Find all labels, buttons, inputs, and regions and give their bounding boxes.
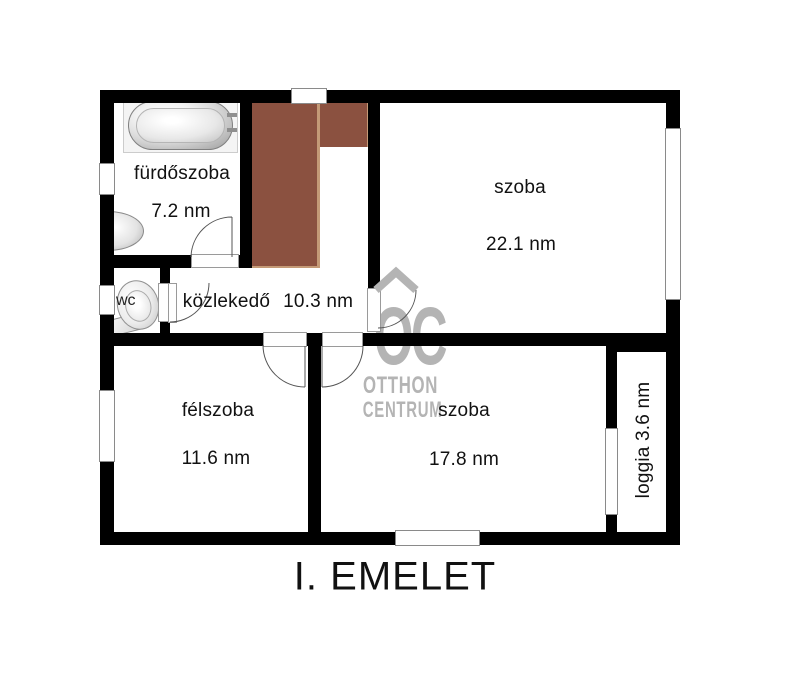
room-label-room-large: szoba — [494, 177, 546, 199]
room-area-bathroom: 7.2 nm — [151, 201, 210, 223]
watermark-line1: OTTHON — [363, 374, 433, 398]
watermark-line2: CENTRUM — [363, 399, 434, 421]
wall-left — [100, 90, 114, 545]
entrance-opening — [291, 88, 327, 104]
wall-halfroom-room-separator — [308, 333, 321, 532]
window-room-medium — [395, 530, 480, 546]
door-swing-room-medium-icon — [322, 346, 363, 387]
faucet-icon — [227, 128, 237, 132]
room-label-room-medium: szoba — [438, 400, 490, 422]
window-halfroom — [99, 390, 115, 462]
room-area-halfroom: 11.6 nm — [182, 448, 251, 470]
room-label-hallway: közlekedő10.3 nm — [183, 291, 353, 313]
stairwell-area — [252, 93, 320, 268]
floor-title: I. EMELET — [294, 555, 496, 600]
door-halfroom — [263, 332, 307, 347]
door-room-medium — [322, 332, 363, 347]
wall-loggia-top — [606, 340, 680, 352]
window-bathroom — [99, 163, 115, 195]
room-label-wc: wc — [116, 292, 136, 310]
floor-plan: OC OTTHON CENTRUM — [0, 0, 800, 691]
wall-bathroom-right — [240, 90, 252, 262]
watermark-roof-icon — [376, 272, 416, 290]
hallway-name: közlekedő — [183, 291, 270, 312]
window-room-large — [665, 128, 681, 300]
hallway-area: 10.3 nm — [283, 291, 353, 312]
wall-room-large-left — [368, 90, 380, 288]
room-label-bathroom: fürdőszoba — [134, 163, 230, 185]
door-wc-leaf — [168, 283, 177, 323]
room-label-loggia: loggia 3.6 nm — [633, 382, 655, 499]
wall-top — [100, 90, 680, 103]
room-area-room-medium: 17.8 nm — [429, 449, 499, 471]
room-label-halfroom: félszoba — [182, 400, 254, 422]
door-swing-halfroom-icon — [263, 345, 305, 387]
faucet-icon — [227, 113, 237, 117]
wall-middle-horizontal — [100, 333, 680, 346]
room-area-room-large: 22.1 nm — [486, 234, 556, 256]
door-bathroom — [191, 254, 239, 268]
opening-loggia — [605, 428, 618, 515]
window-wc — [99, 285, 115, 315]
door-room-large — [367, 288, 381, 332]
wall-bottom — [100, 532, 680, 545]
bathtub-icon — [123, 97, 238, 153]
